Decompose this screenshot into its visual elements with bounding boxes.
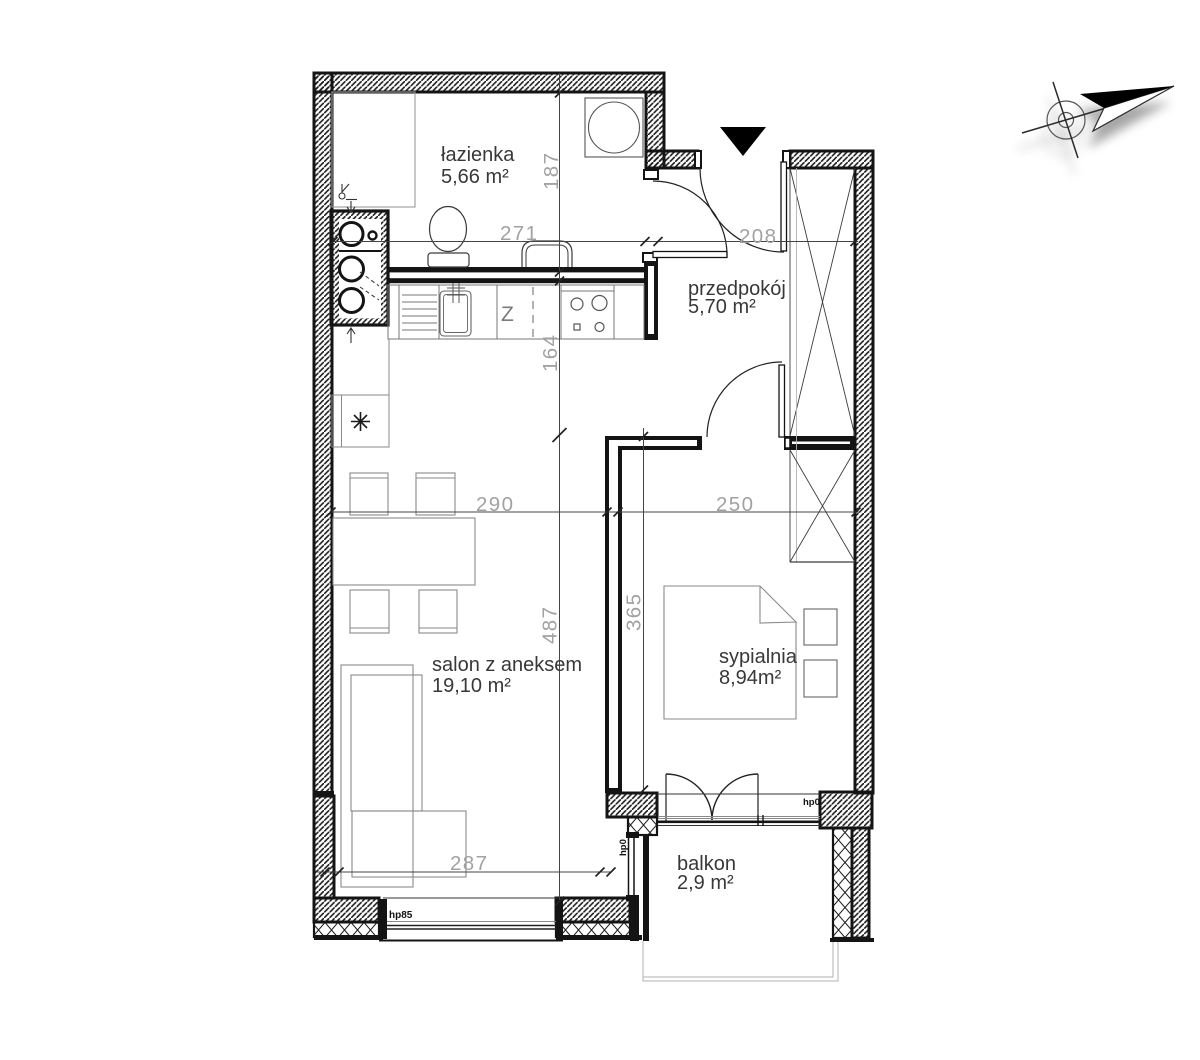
svg-text:hp0: hp0: [803, 797, 820, 808]
svg-text:5,70 m²: 5,70 m²: [688, 296, 756, 318]
svg-text:5,66 m²: 5,66 m²: [441, 166, 509, 188]
svg-text:365: 365: [623, 593, 646, 631]
svg-text:208: 208: [739, 225, 777, 248]
svg-text:287: 287: [450, 852, 488, 875]
svg-text:hp0: hp0: [618, 839, 629, 856]
svg-text:19,10 m²: 19,10 m²: [432, 675, 511, 697]
svg-text:290: 290: [476, 493, 514, 516]
svg-text:Z: Z: [501, 303, 514, 326]
svg-text:164: 164: [539, 334, 562, 372]
svg-text:2,9 m²: 2,9 m²: [677, 872, 734, 894]
svg-text:8,94m²: 8,94m²: [719, 667, 782, 689]
svg-text:250: 250: [716, 493, 754, 516]
svg-text:187: 187: [540, 152, 563, 190]
svg-text:łazienka: łazienka: [441, 144, 515, 166]
svg-text:hp85: hp85: [389, 910, 413, 921]
svg-text:salon z aneksem: salon z aneksem: [432, 654, 582, 676]
svg-text:487: 487: [539, 606, 562, 644]
svg-text:271: 271: [500, 222, 538, 245]
svg-text:sypialnia: sypialnia: [719, 646, 798, 668]
